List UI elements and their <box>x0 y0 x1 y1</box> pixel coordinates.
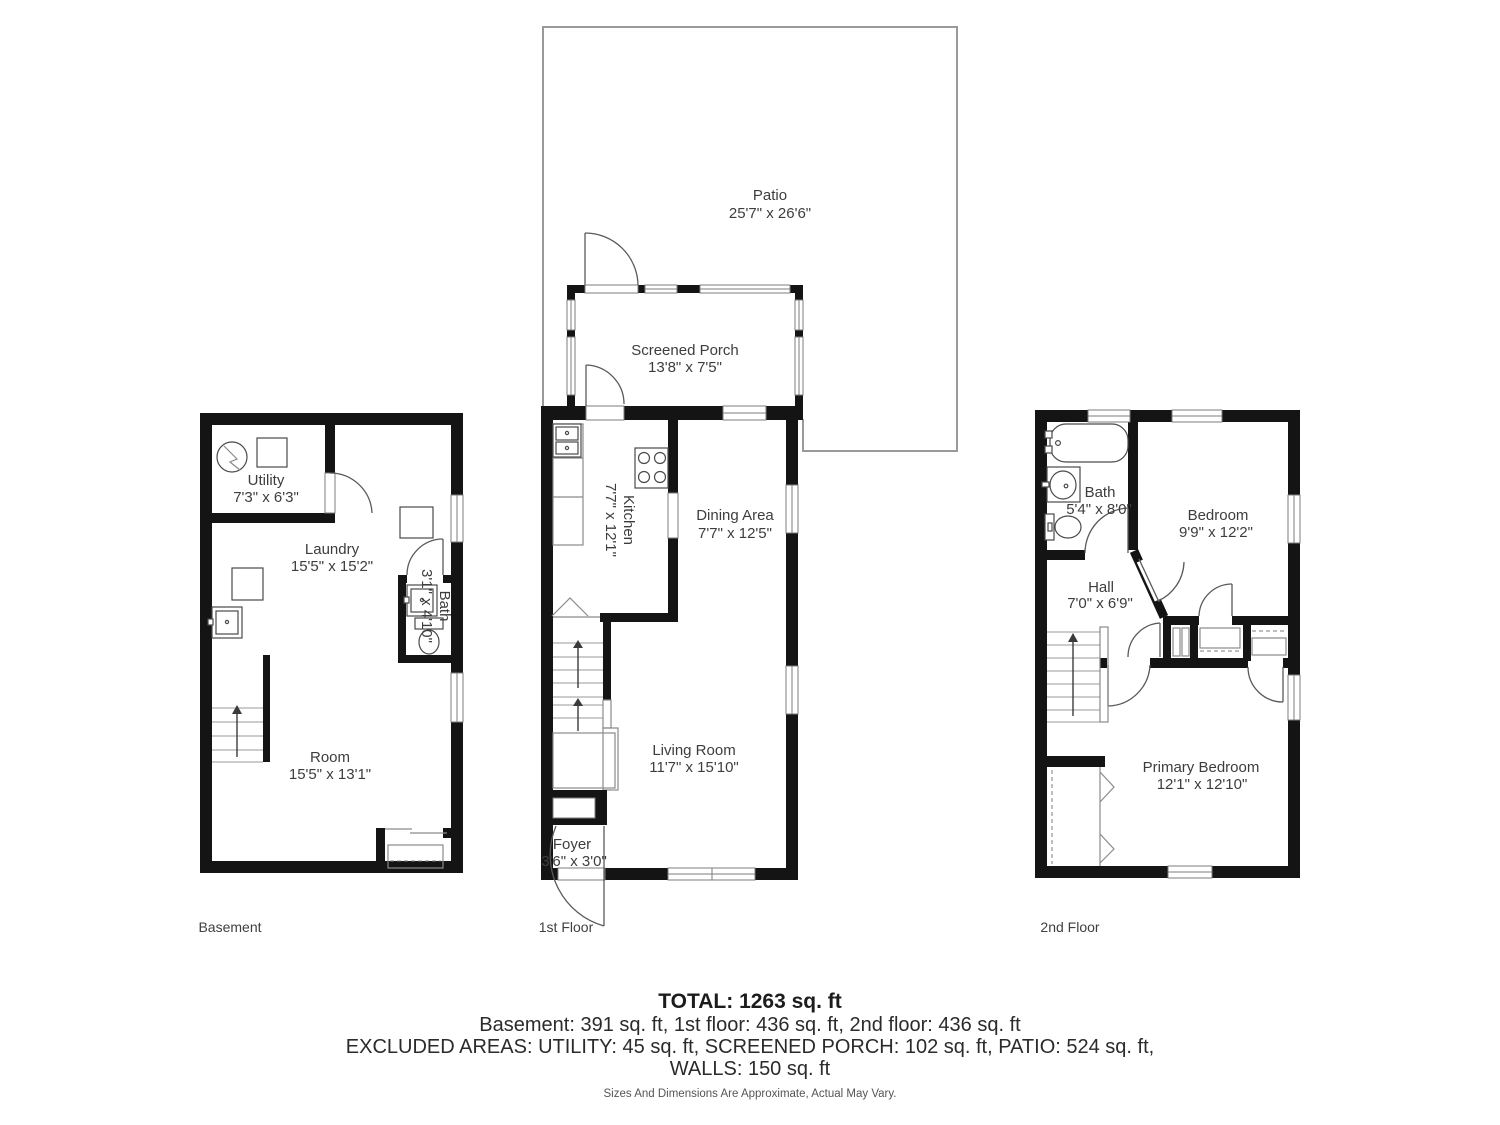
dining-dims: 7'7" x 12'5" <box>698 525 772 542</box>
patio-area: Patio 25'7" x 26'6" <box>543 27 957 451</box>
utility-dims: 7'3" x 6'3" <box>233 489 299 506</box>
floor-areas-text: Basement: 391 sq. ft, 1st floor: 436 sq.… <box>0 1014 1500 1037</box>
foyer-label: Foyer <box>553 836 591 853</box>
dining-label: Dining Area <box>696 507 774 524</box>
primary-bedroom-door <box>1108 665 1150 706</box>
excluded-areas-text: EXCLUDED AREAS: UTILITY: 45 sq. ft, SCRE… <box>0 1036 1500 1059</box>
total-area-text: TOTAL: 1263 sq. ft <box>0 990 1500 1014</box>
kitchen-sink-icon <box>553 424 581 457</box>
porch-windows <box>567 285 803 395</box>
kitchen-pass-through <box>668 493 678 538</box>
basement-stair-break-icon <box>552 598 600 617</box>
kitchen-label: Kitchen <box>620 495 637 545</box>
basement-bath-dims: 3'1" x 4'10" <box>418 569 435 643</box>
primary-bedroom-door-2 <box>1248 667 1283 702</box>
bedroom-dims: 9'9" x 12'2" <box>1179 524 1253 541</box>
bathroom-sink-icon <box>1042 467 1080 502</box>
basement-stairs <box>212 705 263 762</box>
laundry-label: Laundry <box>305 541 360 558</box>
primary-bedroom-label: Primary Bedroom <box>1143 759 1260 776</box>
porch-door-to-patio <box>585 233 638 293</box>
primary-closet <box>1052 767 1114 866</box>
laundry-sink-icon <box>208 607 242 638</box>
bedroom-label: Bedroom <box>1188 507 1249 524</box>
laundry-dims: 15'5" x 15'2" <box>291 558 373 575</box>
room-dims: 15'5" x 13'1" <box>289 766 371 783</box>
floorplan-canvas: Patio 25'7" x 26'6" Screened Porch 13'8"… <box>0 0 1500 1125</box>
bedroom-closet-door <box>1199 584 1232 616</box>
laundry-appliance-icon <box>400 507 433 538</box>
basement-floor-label: Basement <box>198 919 261 935</box>
basement-plan: Utility 7'3" x 6'3" Laundry 15'5" x 15'2… <box>200 413 463 873</box>
walls-area-text: WALLS: 150 sq. ft <box>0 1058 1500 1081</box>
hall-dims: 7'0" x 6'9" <box>1067 595 1133 612</box>
bathtub-icon <box>1045 424 1128 462</box>
disclaimer-text: Sizes And Dimensions Are Approximate, Ac… <box>0 1088 1500 1100</box>
bath2-dims: 5'4" x 8'0" <box>1066 501 1132 518</box>
stove-icon <box>635 448 668 488</box>
first-floor-label: 1st Floor <box>539 919 594 935</box>
kitchen-dims: 7'7" x 12'1" <box>602 483 619 557</box>
hall-closet-door <box>1128 623 1160 657</box>
closet-interiors <box>1173 628 1286 656</box>
utility-door <box>325 473 372 513</box>
living-label: Living Room <box>652 742 735 759</box>
foyer-closet <box>546 790 607 825</box>
bedroom-door <box>1139 559 1184 602</box>
utility-label: Utility <box>248 472 285 489</box>
room-label: Room <box>310 749 350 766</box>
primary-bedroom-dims: 12'1" x 12'10" <box>1157 776 1248 793</box>
utility-appliance-icon <box>257 438 287 467</box>
floorplan-page: Patio 25'7" x 26'6" Screened Porch 13'8"… <box>0 0 1500 1125</box>
second-floor-stairs <box>1047 627 1108 722</box>
screened-porch: Screened Porch 13'8" x 7'5" <box>567 233 803 407</box>
bath2-label: Bath <box>1085 484 1116 501</box>
basement-bath-label: Bath <box>436 591 453 622</box>
kitchen-label-group: Kitchen 7'7" x 12'1" <box>602 483 637 557</box>
porch-dims: 13'8" x 7'5" <box>648 359 722 376</box>
first-floor-plan: Kitchen 7'7" x 12'1" Dining Area 7'7" x … <box>541 365 803 926</box>
patio-label: Patio <box>753 187 787 204</box>
hall-label: Hall <box>1088 579 1114 596</box>
second-floor-label: 2nd Floor <box>1040 919 1099 935</box>
foyer-dims: 3'6" x 3'0" <box>541 853 607 870</box>
second-floor-plan: Bath 5'4" x 8'0" Bedroom 9'9" x 12'2" Ha… <box>1035 410 1300 878</box>
porch-label: Screened Porch <box>631 342 739 359</box>
patio-outline <box>543 27 957 451</box>
living-dims: 11'7" x 15'10" <box>649 759 739 776</box>
first-floor-windows <box>668 406 798 880</box>
water-heater-icon <box>217 442 247 472</box>
laundry-box-icon <box>232 568 263 600</box>
patio-dims: 25'7" x 26'6" <box>729 205 811 222</box>
porch-to-kitchen-door <box>586 365 624 420</box>
